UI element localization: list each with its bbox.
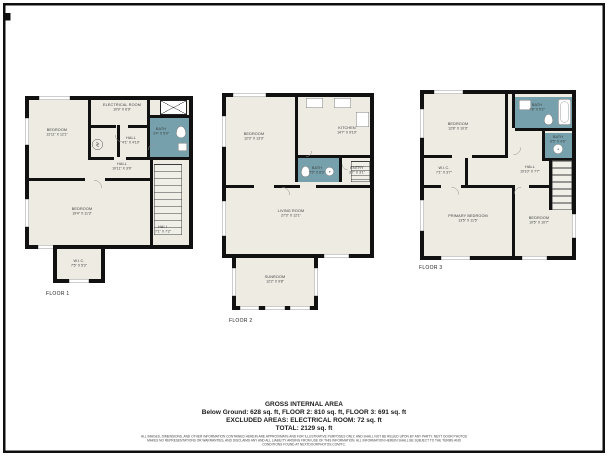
wall-segment [529,185,549,188]
room-dims: 10'5" X 10'7" [529,220,549,225]
summary-breakdown: Below Ground: 628 sq. ft, FLOOR 2: 810 s… [0,408,608,416]
floor-plan-1: BEDROOM 12'11" X 12'1" ELECTRICAL ROOM 1… [25,96,193,249]
room-dims: 10'10" X 7'7" [520,169,540,174]
room-label-hall-small: HALL 4'1" X 4'10" [122,135,140,144]
room-dims: 10'9" X 6'9" [103,107,141,112]
floor-plan-1-wic: W.I.C. 7'5" X 5'3" [53,245,105,283]
door-arc-icon [514,187,528,201]
door-arc-icon [506,140,521,155]
window-icon [233,93,266,97]
wall-segment [29,178,85,181]
floor-plan-2: BEDROOM 12'3" X 13'3" KITCHEN 14'7" X 9'… [222,93,374,258]
stove-icon [334,98,351,108]
wall-segment [339,158,342,182]
summary-title: GROSS INTERNAL AREA [0,400,608,408]
room-dims: 7'1" X 3'7" [436,170,452,175]
room-label-bath: BATH 3'4" X 5'9" [153,126,169,135]
floor-plan-sheet: BEDROOM 12'11" X 12'1" ELECTRICAL ROOM 1… [0,0,608,456]
floor-3-label: FLOOR 3 [419,265,443,271]
wall-segment [88,157,114,160]
window-icon [420,109,424,138]
door-arc-icon [274,187,290,203]
room-dims: 7'5" X 5'3" [71,263,87,268]
toilet-icon [544,114,553,125]
room-label-bath-2: BATH 6'5" X 4'6" [550,134,566,143]
wall-segment [465,158,468,186]
room-label-hall-stairs: HALL 7'1" X 7'2" [155,224,171,233]
wall-segment [274,185,300,188]
window-icon [25,118,29,145]
room-dims: 27'3" X 12'1" [278,213,305,218]
room-label-bedroom-top: BEDROOM 12'8" X 10'3" [448,121,468,130]
room-label-hall: HALL 10'10" X 7'7" [520,164,540,173]
room-label-hall-corridor: HALL 10'11" X 3'9" [112,161,132,170]
wall-segment [126,157,189,160]
toilet-icon [176,126,186,138]
shower-icon [160,100,187,115]
window-icon [240,306,259,310]
wall-segment [461,185,513,188]
room-dims: 12'8" X 10'3" [448,126,468,131]
bathtub-icon [558,99,571,125]
room-label-primary-bedroom: PRIMARY BEDROOM 13'5" X 11'5" [448,213,488,222]
floor-plan-2-sunroom: SUNROOM 12'2" X 9'8" [232,254,318,310]
electrical-panel-icon [92,139,103,150]
wall-segment [472,155,508,158]
window-icon [441,256,470,260]
fridge-icon [356,112,369,127]
room-dims: 10'11" X 3'9" [112,166,132,171]
window-icon [222,116,226,147]
summary-total: TOTAL: 2129 sq. ft [0,424,608,432]
room-label-entry: ENTRY 3'7" X 3'1" [349,165,365,174]
room-dims: 12'11" X 12'1" [46,132,67,137]
summary-disclaimer: ALL IMAGES, DIMENSIONS, AND OTHER INFORM… [139,435,469,447]
door-arc-icon [86,180,102,196]
window-icon [25,199,29,227]
room-dims: 7'1" X 7'2" [155,229,171,234]
wall-segment [128,125,148,128]
wall-segment [424,155,452,158]
wall-segment [316,185,370,188]
window-icon [232,268,236,296]
area-summary: GROSS INTERNAL AREA Below Ground: 628 sq… [0,400,608,447]
wall-segment [105,178,150,181]
window-icon [265,306,285,310]
room-dims: 12'3" X 13'3" [244,136,264,141]
room-label-bedroom-br: BEDROOM 10'5" X 10'7" [529,215,549,224]
summary-excluded: EXCLUDED AREAS: ELECTRICAL ROOM: 72 sq. … [0,416,608,424]
room-label-bedroom-1: BEDROOM 12'11" X 12'1" [46,127,67,136]
window-icon [69,279,89,283]
window-icon [222,201,226,236]
stairs-icon [552,160,572,210]
room-label-wic: W.I.C. 7'5" X 5'3" [71,258,87,267]
window-icon [522,256,547,260]
sink-icon [178,143,187,151]
window-icon [314,268,318,296]
floor-2-label: FLOOR 2 [229,318,253,324]
room-dims: 5'5" X 8'3" [309,170,325,175]
room-label-kitchen: KITCHEN 14'7" X 9'10" [337,125,357,134]
room-label-bath-1: BATH 7'8" X 5'2" [529,102,545,111]
window-icon [572,214,576,238]
room-label-sunroom: SUNROOM 12'2" X 9'8" [265,274,286,283]
window-icon [39,96,70,100]
wall-segment [505,94,508,155]
room-label-bath: BATH 5'5" X 8'3" [309,165,325,174]
room-dims: 19'4" X 11'3" [72,211,92,216]
room-dims: 6'5" X 4'6" [550,139,566,144]
room-label-living-room: LIVING ROOM 27'3" X 12'1" [278,208,305,217]
window-icon [324,254,349,258]
wall-segment [512,94,515,128]
room-dims: 7'8" X 5'2" [529,107,545,112]
corner-mark [3,13,11,21]
sink-icon [325,167,334,176]
room-dims: 14'7" X 9'10" [337,130,357,135]
wall-segment [512,185,515,256]
room-dims: 4'1" X 4'10" [122,140,140,145]
wall-segment [542,129,545,158]
wall-segment [88,100,91,157]
room-label-bedroom: BEDROOM 12'3" X 13'3" [244,131,264,140]
room-dims: 13'5" X 11'5" [448,218,488,223]
room-dims: 12'2" X 9'8" [265,279,286,284]
floor-plan-3: BEDROOM 12'8" X 10'3" BATH 7'8" X 5'2" B… [420,90,576,260]
wall-segment [88,125,116,128]
window-icon [420,200,424,231]
room-label-bedroom-2: BEDROOM 19'4" X 11'3" [72,206,92,215]
room-label-electrical-room: ELECTRICAL ROOM 10'9" X 6'9" [103,102,141,111]
shower-icon [553,144,563,154]
room-dims: 3'4" X 5'9" [153,131,169,136]
wall-segment [226,185,254,188]
wall-segment [424,185,441,188]
room-dims: 3'7" X 3'1" [349,170,365,175]
door-arc-icon [444,187,459,202]
room-label-wic: W.I.C. 7'1" X 3'7" [436,165,452,174]
wall-segment [150,160,153,245]
kitchen-sink-icon [306,98,323,108]
window-icon [434,90,463,94]
window-icon [290,306,310,310]
floor-1-label: FLOOR 1 [46,291,70,297]
